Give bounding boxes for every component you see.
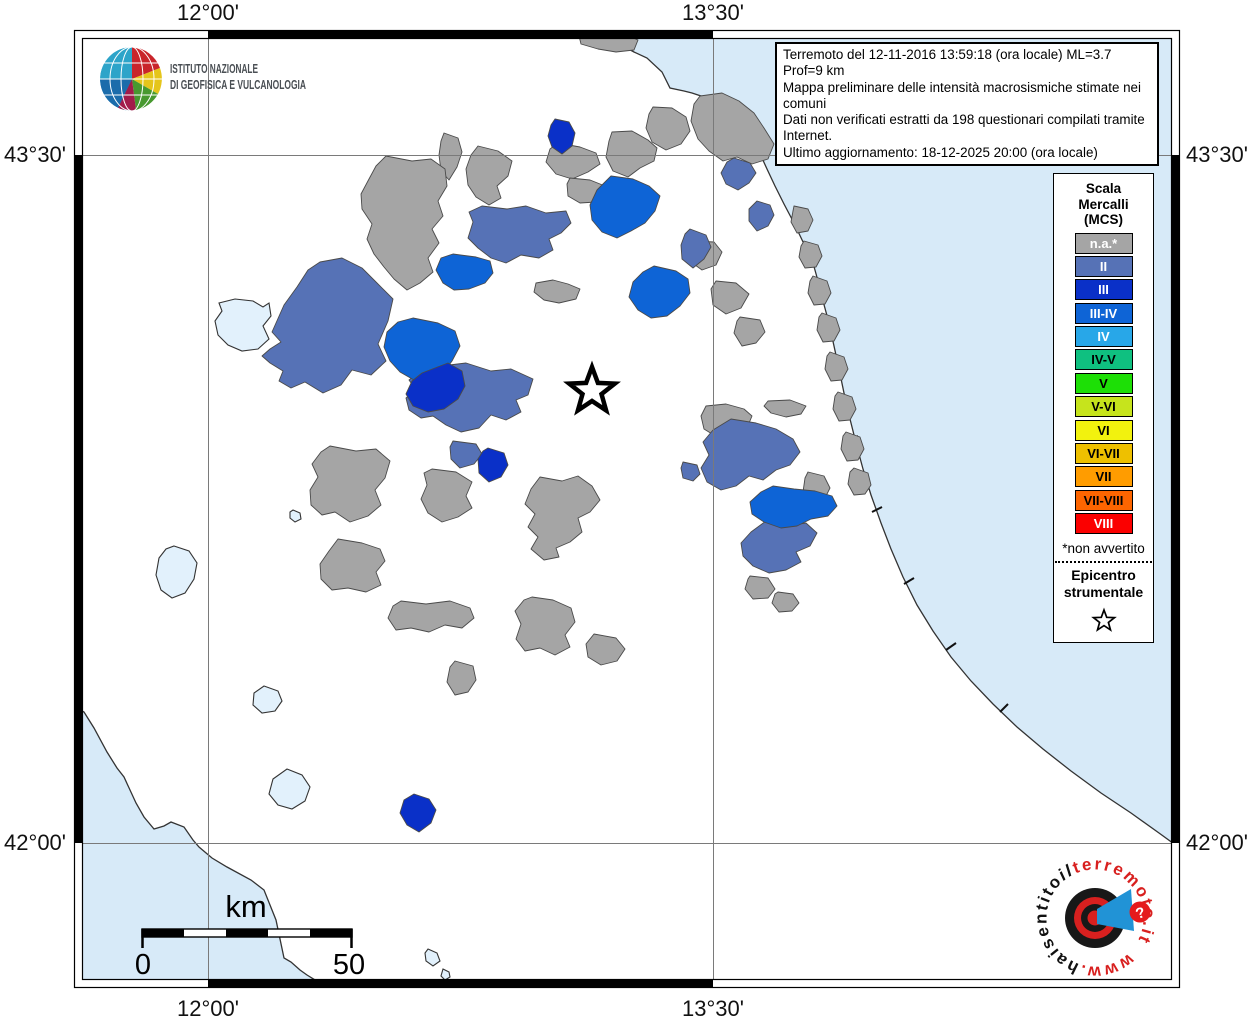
legend-item-III: III — [1075, 279, 1133, 300]
legend-intensity-scale: n.a.*IIIIIIII-IVIVIV-VVV-VIVIVI-VIIVIIVI… — [1054, 233, 1153, 535]
legend-item-n.a.*: n.a.* — [1075, 233, 1133, 254]
legend-item-VI-VII: VI-VII — [1075, 443, 1133, 464]
label-lon-east-bottom: 13°30' — [653, 996, 773, 1022]
info-line-map-desc: Mappa preliminare delle intensità macros… — [783, 80, 1151, 113]
legend-divider — [1055, 561, 1152, 563]
legend-box: Scala Mercalli (MCS) n.a.*IIIIIIII-IVIVI… — [1053, 173, 1154, 643]
label-lon-east-top: 13°30' — [653, 0, 773, 26]
legend-item-VII: VII — [1075, 466, 1133, 487]
ingv-name-line1: ISTITUTO NAZIONALE — [170, 62, 258, 76]
legend-epicenter-line2: strumentale — [1054, 584, 1153, 601]
info-line-event: Terremoto del 12-11-2016 13:59:18 (ora l… — [783, 47, 1151, 80]
scale-bar-min: 0 — [135, 949, 151, 981]
legend-item-IV: IV — [1075, 326, 1133, 347]
legend-item-IV-V: IV-V — [1075, 349, 1133, 370]
info-line-questionnaires: Dati non verificati estratti da 198 ques… — [783, 112, 1151, 145]
legend-item-V: V — [1075, 373, 1133, 394]
label-lat-north-right: 43°30' — [1186, 142, 1255, 168]
legend-item-II: II — [1075, 256, 1133, 277]
legend-title-line3: (MCS) — [1054, 212, 1153, 228]
label-lat-north-left: 43°30' — [0, 142, 66, 168]
legend-footnote: *non avvertito — [1054, 541, 1153, 556]
municipality-na — [388, 601, 474, 632]
legend-item-V-VI: V-VI — [1075, 396, 1133, 417]
legend-epicenter-star-icon — [1089, 605, 1119, 637]
legend-title: Scala Mercalli (MCS) — [1054, 174, 1153, 228]
info-line-updated: Ultimo aggiornamento: 18-12-2025 20:00 (… — [783, 145, 1151, 161]
label-lon-west-bottom: 12°00' — [148, 996, 268, 1022]
legend-epicenter-line1: Epicentro — [1054, 567, 1153, 584]
legend-title-line2: Mercalli — [1054, 197, 1153, 213]
macroseismic-map-page: km 0 50 www.haisentitoilterremoto.it ? — [0, 0, 1255, 1024]
label-lat-south-right: 42°00' — [1186, 830, 1255, 856]
label-lon-west-top: 12°00' — [148, 0, 268, 26]
ingv-name-line2: DI GEOFISICA E VULCANOLOGIA — [170, 78, 306, 92]
municipality-na — [515, 597, 575, 655]
scale-bar-unit: km — [225, 889, 266, 924]
legend-item-VI: VI — [1075, 420, 1133, 441]
scale-bar-max: 50 — [333, 949, 365, 981]
legend-item-VII-VIII: VII-VIII — [1075, 490, 1133, 511]
legend-item-III-IV: III-IV — [1075, 303, 1133, 324]
legend-title-line1: Scala — [1054, 181, 1153, 197]
label-lat-south-left: 42°00' — [0, 830, 66, 856]
earthquake-info-box: Terremoto del 12-11-2016 13:59:18 (ora l… — [775, 42, 1159, 166]
legend-item-VIII: VIII — [1075, 513, 1133, 534]
